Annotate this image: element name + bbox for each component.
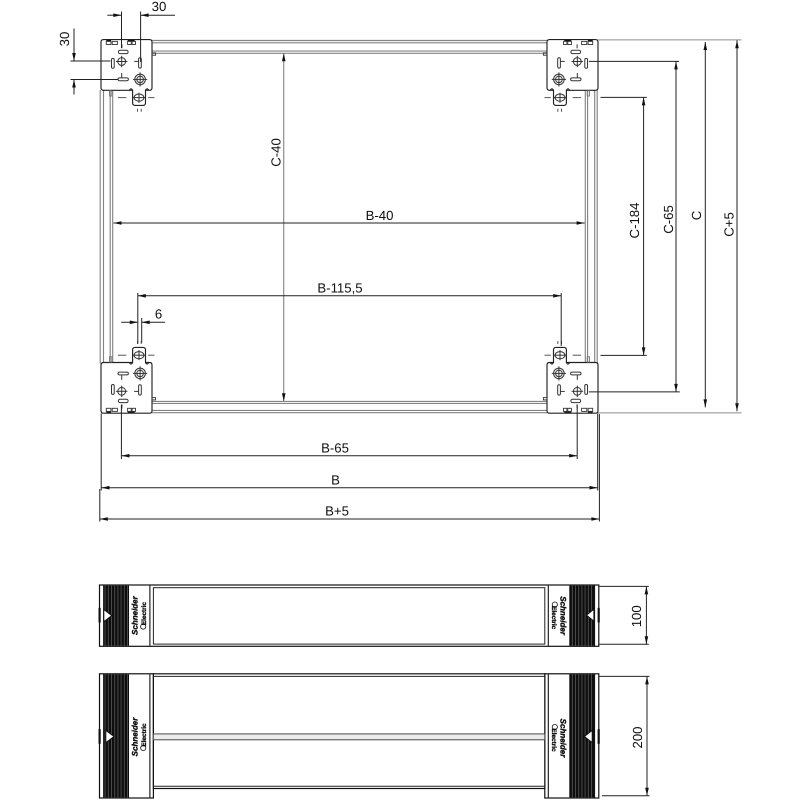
svg-text:B-40: B-40 — [366, 208, 394, 223]
svg-text:30: 30 — [57, 32, 72, 47]
svg-text:C: C — [689, 210, 704, 220]
svg-text:Schneider: Schneider — [559, 596, 568, 636]
svg-text:C+5: C+5 — [721, 212, 736, 237]
svg-text:30: 30 — [152, 0, 167, 14]
svg-text:B-115,5: B-115,5 — [317, 281, 362, 296]
svg-text:Schneider: Schneider — [559, 719, 568, 759]
svg-text:B-65: B-65 — [321, 440, 349, 455]
svg-text:Electric: Electric — [141, 723, 148, 747]
svg-text:Electric: Electric — [141, 602, 148, 626]
svg-text:Schneider: Schneider — [131, 717, 140, 757]
svg-text:B: B — [331, 472, 340, 487]
svg-text:100: 100 — [629, 605, 644, 627]
svg-text:200: 200 — [630, 726, 645, 748]
svg-text:C-40: C-40 — [269, 138, 284, 167]
svg-text:Electric: Electric — [550, 728, 557, 752]
svg-text:C-184: C-184 — [627, 203, 642, 239]
svg-text:Electric: Electric — [550, 606, 557, 630]
svg-text:6: 6 — [155, 306, 162, 321]
svg-text:C-65: C-65 — [661, 205, 676, 234]
svg-text:B+5: B+5 — [325, 504, 349, 519]
svg-text:Schneider: Schneider — [131, 595, 140, 635]
